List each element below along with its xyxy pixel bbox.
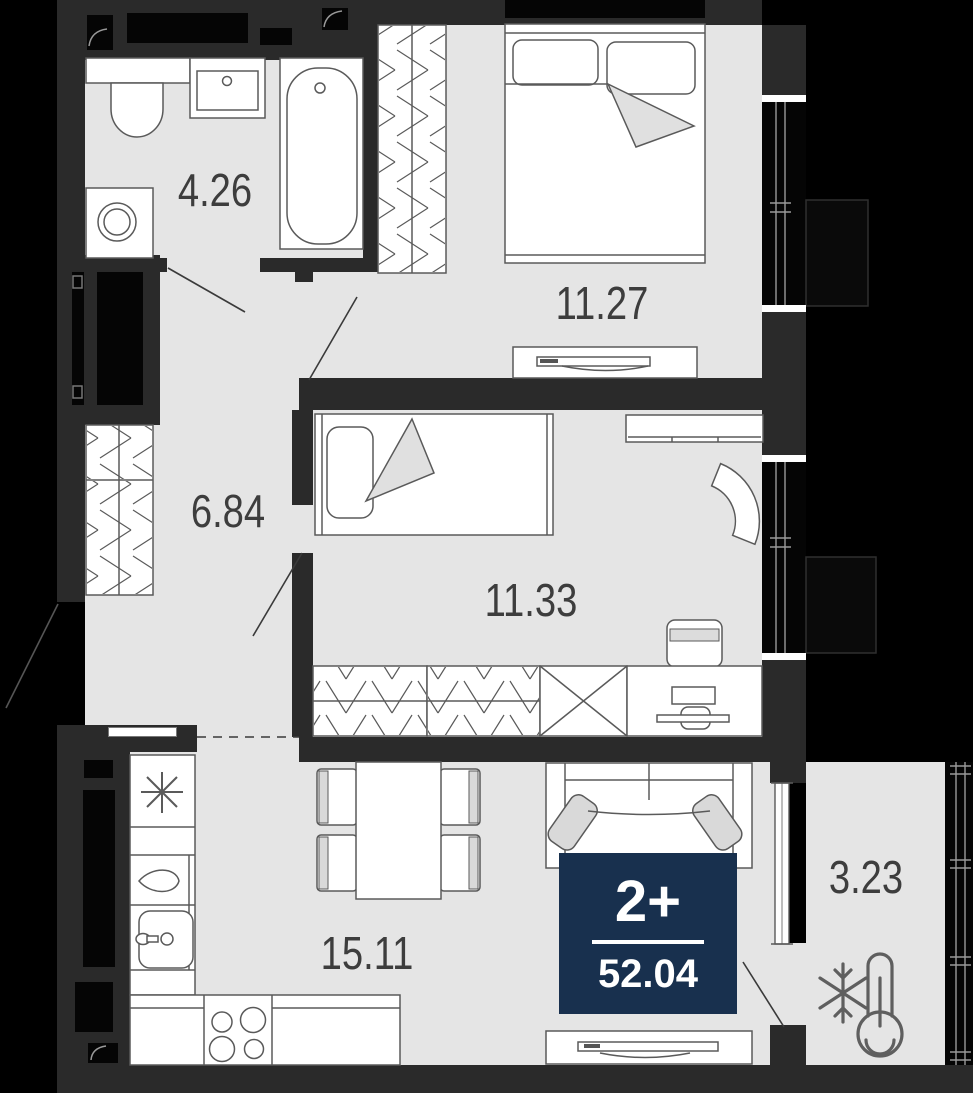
exterior-baskets: [806, 200, 876, 653]
shaft-main: [97, 272, 143, 405]
wall-right-2: [762, 312, 806, 378]
wall-hall-right-lower: [292, 553, 313, 737]
balcony-area-label: 3.23: [829, 850, 903, 904]
wall-bath-bedroom: [363, 0, 378, 258]
vent-duct-icon: [88, 1043, 118, 1063]
badge-rooms-count: 2+: [615, 873, 681, 931]
badge-total-area: 52.04: [598, 954, 698, 994]
window-bedroom-2: [762, 462, 806, 660]
wall-partition-stub-top: [770, 762, 806, 783]
bedroom-1-floor-strip: [313, 272, 762, 378]
bedroom-1-floor: [378, 25, 762, 272]
bathroom-area-label: 4.26: [178, 163, 252, 217]
badge-divider: [592, 940, 704, 944]
window-bedroom-1: [762, 100, 806, 312]
apartment-badge: 2+ 52.04: [559, 853, 737, 1014]
lintel-bed: [505, 0, 705, 18]
vent-duct-icon: [87, 15, 113, 50]
shaft-kitchen-3: [75, 982, 113, 1032]
wall-bedroom2-bottom: [299, 737, 780, 762]
wall-right-3: [762, 410, 806, 462]
shaft-kitchen-2: [83, 790, 115, 967]
wall-bath-bottom-right: [260, 258, 380, 272]
balcony-door-gap: [776, 943, 806, 1025]
balcony-floor: [806, 762, 945, 1065]
wall-partition-stub-bottom: [770, 1025, 806, 1065]
bedroom-2-area-label: 11.33: [485, 573, 578, 627]
wall-bedroom-divider: [299, 378, 806, 410]
shaft-kitchen-1: [84, 760, 113, 778]
wall-right-4: [762, 660, 806, 762]
hall-living-pass: [197, 737, 299, 757]
kitchen-area-label: 15.11: [321, 926, 414, 980]
shaft-top-2: [260, 28, 292, 45]
entrance-door: [6, 604, 58, 708]
shaft-narrow: [72, 272, 84, 405]
threshold: [108, 727, 177, 737]
floor-plan: 4.26 6.84 11.27 11.33 15.11 3.23 2+ 52.0…: [0, 0, 973, 1093]
balcony-glazing: [945, 762, 973, 1065]
wall-right-1: [762, 25, 806, 100]
wall-hall-right-upper: [292, 410, 313, 505]
bedroom-1-area-label: 11.27: [556, 276, 649, 330]
wall-tab: [295, 272, 313, 282]
hallway-area-label: 6.84: [191, 484, 265, 538]
vent-duct-icon: [322, 8, 348, 30]
shaft-top-1: [127, 13, 248, 43]
bathroom-floor: [85, 60, 363, 258]
wall-bottom: [57, 1065, 973, 1093]
